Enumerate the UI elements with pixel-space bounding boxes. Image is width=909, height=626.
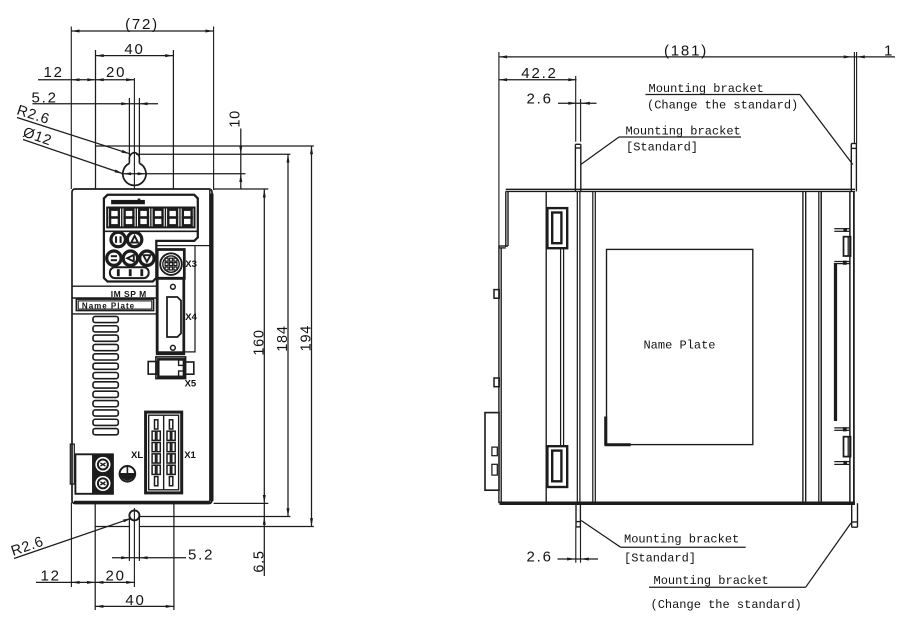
svg-text:[Standard]: [Standard] bbox=[624, 552, 696, 566]
svg-text:40: 40 bbox=[124, 41, 144, 58]
svg-text:Mounting bracket: Mounting bracket bbox=[654, 574, 769, 588]
svg-text:1: 1 bbox=[884, 43, 894, 60]
svg-text:5.2: 5.2 bbox=[188, 547, 214, 564]
svg-text:(181): (181) bbox=[664, 43, 708, 60]
svg-text:6.5: 6.5 bbox=[252, 550, 268, 572]
svg-text:20: 20 bbox=[106, 567, 126, 584]
svg-text:194: 194 bbox=[299, 325, 315, 351]
svg-text:(Change the standard): (Change the standard) bbox=[651, 598, 802, 612]
svg-text:5.2: 5.2 bbox=[32, 90, 58, 107]
svg-text:Name Plate: Name Plate bbox=[643, 339, 715, 353]
svg-text:2.6: 2.6 bbox=[527, 549, 553, 566]
svg-text:2.6: 2.6 bbox=[527, 91, 553, 108]
svg-text:Name Plate: Name Plate bbox=[82, 301, 135, 310]
svg-text:Mounting bracket: Mounting bracket bbox=[624, 533, 739, 547]
svg-text:12: 12 bbox=[44, 64, 64, 81]
svg-text:[Standard]: [Standard] bbox=[626, 141, 698, 155]
svg-text:42.2: 42.2 bbox=[521, 65, 557, 82]
svg-text:X3: X3 bbox=[185, 259, 197, 270]
svg-text:12: 12 bbox=[41, 567, 61, 584]
svg-text:(72): (72) bbox=[125, 16, 159, 33]
svg-text:160: 160 bbox=[252, 329, 268, 355]
svg-text:40: 40 bbox=[125, 592, 145, 609]
svg-text:10: 10 bbox=[227, 110, 243, 128]
svg-text:184: 184 bbox=[275, 325, 291, 351]
svg-text:XL: XL bbox=[131, 450, 143, 461]
svg-text:X1: X1 bbox=[184, 450, 196, 461]
svg-text:(Change the standard): (Change the standard) bbox=[647, 99, 798, 113]
svg-text:X5: X5 bbox=[185, 379, 197, 390]
svg-text:X4: X4 bbox=[185, 312, 197, 323]
svg-text:20: 20 bbox=[106, 64, 126, 81]
